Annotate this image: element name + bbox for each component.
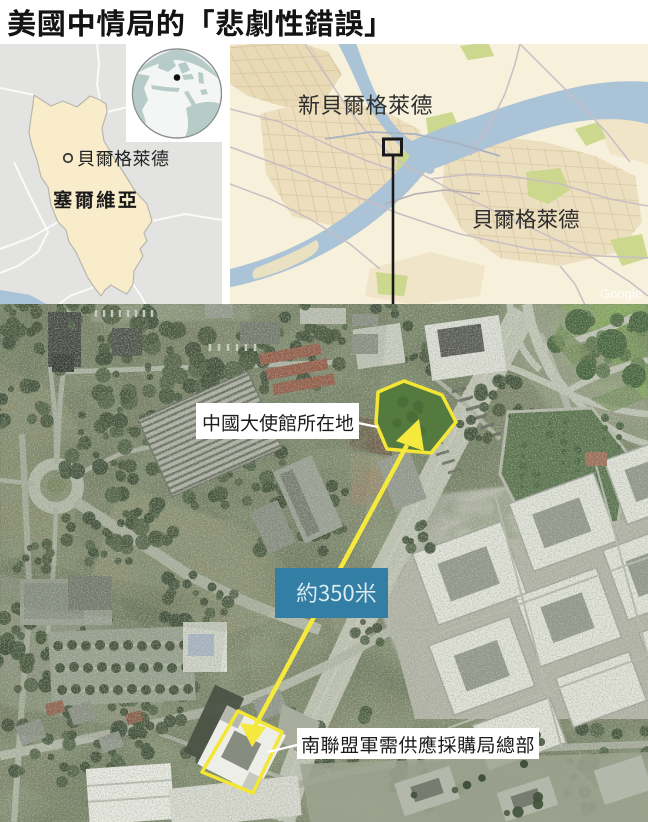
svg-text:Google: Google [600,286,642,301]
